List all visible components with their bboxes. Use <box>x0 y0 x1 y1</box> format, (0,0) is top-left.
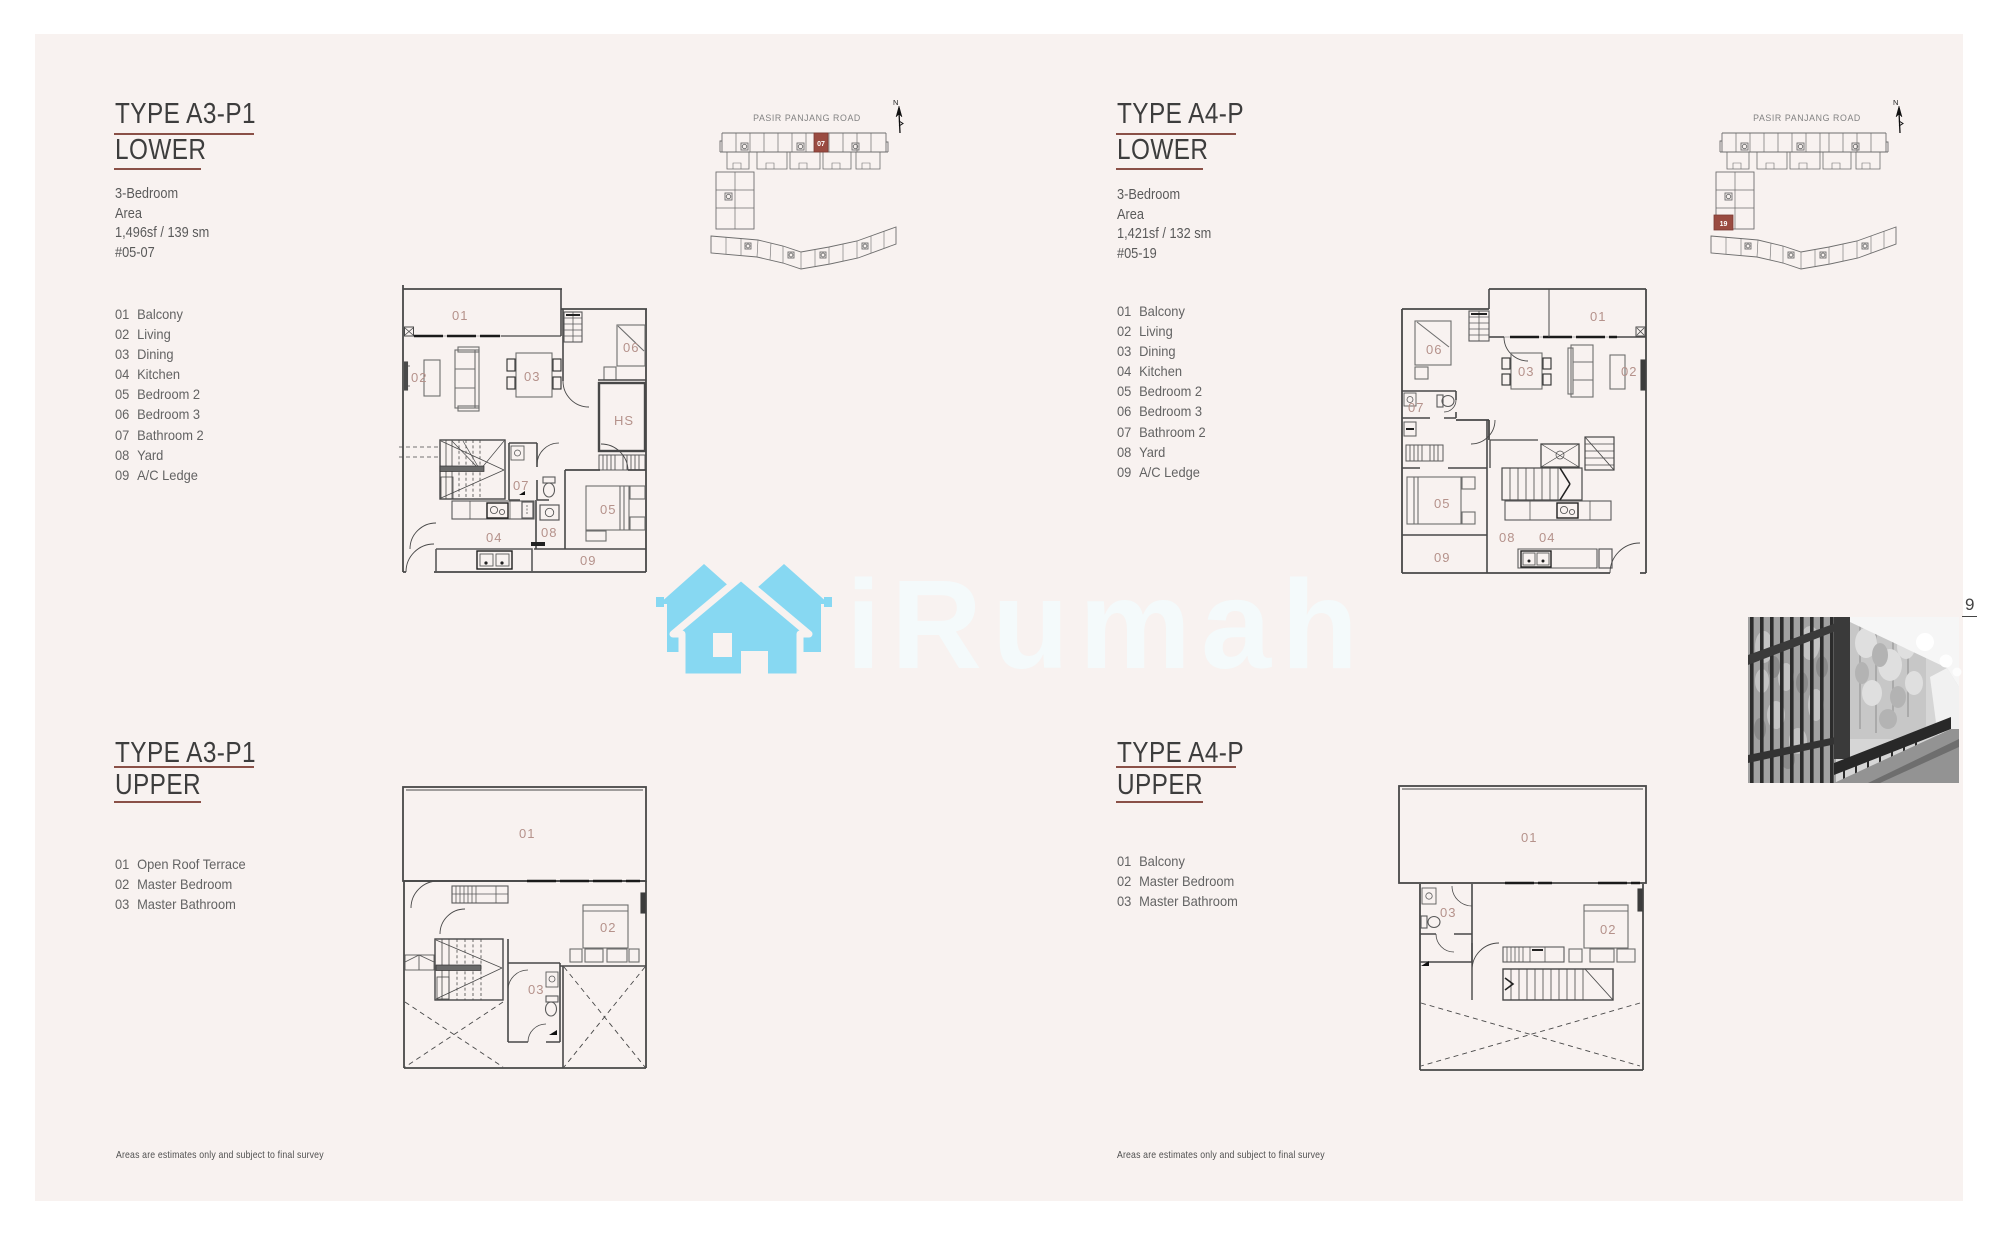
svg-text:07: 07 <box>1408 400 1424 415</box>
svg-text:HS: HS <box>614 413 634 428</box>
svg-text:02: 02 <box>1621 364 1637 379</box>
svg-text:05: 05 <box>600 502 616 517</box>
svg-text:PASIR PANJANG ROAD: PASIR PANJANG ROAD <box>1753 113 1861 123</box>
svg-text:03: 03 <box>528 982 544 997</box>
svg-text:02: 02 <box>411 370 427 385</box>
svg-text:04: 04 <box>486 530 502 545</box>
svg-text:03: 03 <box>524 369 540 384</box>
svg-text:01: 01 <box>1590 309 1606 324</box>
svg-text:07: 07 <box>817 141 825 148</box>
svg-text:04: 04 <box>1539 530 1555 545</box>
svg-text:08: 08 <box>541 525 557 540</box>
svg-text:01: 01 <box>452 308 468 323</box>
svg-text:08: 08 <box>1499 530 1515 545</box>
svg-text:09: 09 <box>1434 550 1450 565</box>
svg-text:03: 03 <box>1440 905 1456 920</box>
svg-text:05: 05 <box>1434 496 1450 511</box>
svg-text:02: 02 <box>1600 922 1616 937</box>
svg-text:N: N <box>893 98 898 107</box>
svg-text:09: 09 <box>580 553 596 568</box>
svg-text:06: 06 <box>1426 342 1442 357</box>
svg-text:03: 03 <box>1518 364 1534 379</box>
svg-text:19: 19 <box>1720 221 1728 228</box>
svg-text:02: 02 <box>600 920 616 935</box>
svg-text:06: 06 <box>623 340 639 355</box>
svg-text:07: 07 <box>513 478 529 493</box>
svg-text:01: 01 <box>519 826 535 841</box>
svg-text:iRumah: iRumah <box>846 554 1368 695</box>
svg-text:N: N <box>1893 98 1898 107</box>
svg-text:PASIR PANJANG ROAD: PASIR PANJANG ROAD <box>753 113 861 123</box>
svg-text:01: 01 <box>1521 830 1537 845</box>
